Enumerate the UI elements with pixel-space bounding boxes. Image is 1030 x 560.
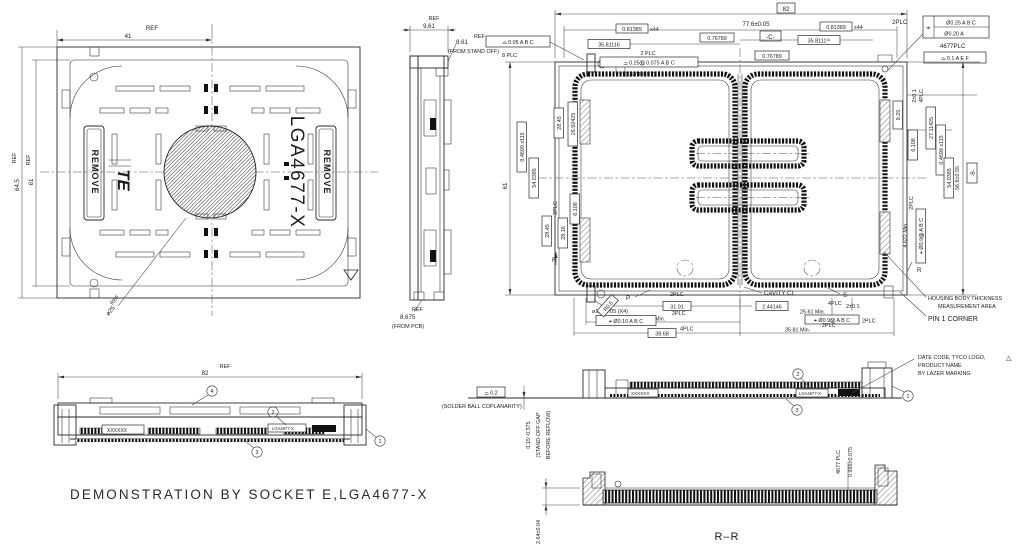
- main-view: 82 2PLC 77.6±0.05 -C- 0.81389 x44 0.8138…: [480, 0, 1030, 360]
- pitch-x-left-count: x44: [650, 27, 659, 33]
- dim-8675-ref: REF: [412, 307, 423, 313]
- position-row2: Ø0.20 A: [944, 32, 964, 38]
- hole-fcf: ⌖ Ø0.10 A B C: [609, 319, 643, 325]
- rr-pin-dim: 0.995±0.075: [848, 447, 854, 477]
- dim-64-5-ref: REF: [12, 152, 18, 163]
- lbl-4plc-b: 4PLC: [828, 301, 842, 307]
- dim-9-25: 9.25: [896, 110, 902, 121]
- rr-dim-height: 2.64±0.04: [536, 520, 542, 544]
- sec-balloon-2: 2: [797, 372, 800, 378]
- coplanarity-fcf: ⌓ 0.2: [484, 391, 497, 397]
- drawing-title: DEMONSTRATION BY SOCKET E,LGA4677-X: [70, 487, 429, 502]
- keypost-note: (KEY POST): [625, 72, 656, 78]
- main-left-dimensions: 61 0.4699 x115 54.0385 28.45 26.92425 2P…: [502, 62, 580, 295]
- dim-540385-l: 54.0385: [532, 168, 538, 188]
- dim-61-main: 61: [502, 182, 509, 189]
- pin1-triangle: [344, 270, 358, 280]
- pickup-cap-circle: [164, 126, 256, 218]
- main-geometry: [538, 48, 926, 312]
- lbl-4plc-b2: 4PLC: [680, 327, 694, 333]
- assembly-dimensions: 82 REF 4 2 3 1: [58, 364, 385, 457]
- dim-2-01-r: 2±0.1: [912, 89, 918, 102]
- dim-076789-a: 0.76789: [707, 36, 727, 42]
- marking-note-1: DATE CODE, TYCO LOGO,: [918, 355, 986, 361]
- assembly-dim-82-ref: REF: [220, 364, 231, 370]
- section-geometry: XXXXXX LGA4677-X: [468, 362, 902, 398]
- dim-8675: 8.675: [400, 314, 416, 321]
- dim-9-61: 9.61: [423, 23, 435, 30]
- dim-56-6: 56.6±0.05: [955, 166, 961, 190]
- dim-2-01-b: 2±0.1: [846, 304, 859, 310]
- note-housing-2: MEASUREMENT AREA: [938, 304, 996, 310]
- sec-p: P: [626, 295, 630, 302]
- marking-note-3: BY LAZER MARKING: [918, 371, 971, 377]
- note-from-pcb: (FROM PCB): [392, 324, 424, 330]
- dim-2845-t: 28.45: [557, 116, 563, 130]
- pitch-x-left: 0.81389: [622, 27, 642, 33]
- dim-3581-r: 35.81 Min.: [785, 328, 810, 334]
- dim-076789-b: 0.76789: [762, 54, 782, 60]
- dim-244146: 2.44146: [762, 305, 782, 311]
- dim-540385-r: 54.0385: [947, 168, 953, 188]
- dim-6108-l: 6.108: [573, 202, 579, 216]
- product-label: LGA4677-X: [286, 116, 307, 229]
- dim-61: 61: [28, 178, 35, 185]
- profile8-plc: 8 PLC: [502, 53, 517, 59]
- sec-r-right: R: [917, 267, 922, 274]
- sec-r-left: R: [552, 257, 557, 264]
- note-housing-1: HOUSING BODY THICKNESS: [928, 296, 1002, 302]
- plc2-b1: 2PLC: [670, 292, 684, 298]
- plc2-l: 2PLC: [553, 201, 559, 215]
- keypost-plc: 2 PLC: [641, 51, 656, 57]
- assembly-geometry: XXXXXX LGA4677-X: [54, 398, 366, 445]
- dim-3101: 31.01: [670, 305, 684, 311]
- rr-pin-count: 4677 PLC: [836, 450, 842, 474]
- rr-section-view: 2.64±0.04 4677 PLC 0.995±0.075 R–R: [530, 440, 1030, 560]
- pitch-x-right-count: x44: [854, 25, 863, 31]
- marking-note-flag: △: [1006, 355, 1012, 362]
- datum-b: -B-: [971, 169, 977, 176]
- marking-note-2: PRODUCT NAME: [918, 363, 962, 369]
- dim-2845-b: 28.45: [545, 224, 551, 238]
- plan-view: REMOVE REMOVE LGA4677-X TE 41 REF 64.5 R…: [0, 0, 390, 340]
- pitch-x-right: 0.81389: [826, 25, 846, 31]
- main-top-dimensions: 82 2PLC 77.6±0.05 -C- 0.81389 x44 0.8138…: [486, 3, 908, 78]
- dim-3868: 38.68: [655, 332, 669, 338]
- marking-xxxxxx: XXXXXX: [107, 428, 128, 434]
- te-logo: TE: [114, 169, 133, 191]
- side-geometry: [410, 56, 451, 300]
- balloon-1: 1: [379, 439, 382, 445]
- assembly-dim-82: 82: [202, 370, 209, 377]
- plc2-top: 2PLC: [892, 19, 908, 26]
- engineering-drawing-canvas: REMOVE REMOVE LGA4677-X TE 41 REF 64.5 R…: [0, 0, 1030, 560]
- keypost-fcf: ⌓ 0.25Ⓜ 0.075 A B C: [623, 61, 674, 67]
- sec-s: S: [843, 292, 847, 299]
- dim-2692425: 26.92425: [571, 113, 577, 135]
- balloon-4: 4: [211, 389, 214, 395]
- rr-label: R–R: [714, 531, 739, 543]
- dim-2561: 25.61 Min.: [800, 310, 825, 316]
- dim-41-ref: REF: [146, 25, 158, 32]
- dim-8-61: 8.61: [456, 39, 468, 46]
- sec-balloon-1: 1: [907, 394, 910, 400]
- remove-right-label: REMOVE: [322, 149, 332, 194]
- balloon-3: 3: [256, 450, 259, 456]
- lbl-4plc-r: 4PLC: [919, 89, 925, 103]
- dim-2711425: 27.11425: [929, 117, 935, 139]
- dim-2816: 28.16: [561, 226, 567, 240]
- position-symbol: ⌖: [927, 25, 931, 32]
- assembly-side-view: XXXXXX LGA4677-X 82 REF 4 2 3 1: [40, 355, 460, 480]
- dim-9-61-ref: REF: [429, 16, 440, 22]
- profile8-fcf: ⌓ 0.05 A B C: [502, 40, 533, 46]
- aef-fcf: ⌓ 0.1 A E F: [941, 56, 969, 62]
- pos-fcf-r: ⌖ Ø0.9Ⓜ A B C: [919, 218, 925, 254]
- main-right-dimensions: 9.25 2±0.1 4PLC 27.11425 6.108 0.4699 x1…: [893, 62, 980, 295]
- product-plate: LGA4677-X: [272, 426, 294, 431]
- dim-41: 41: [125, 33, 132, 40]
- cavity-cl: CAVITY CL: [764, 290, 796, 297]
- coplanarity-note: (SOLDER BALL COPLANARITY): [442, 404, 522, 410]
- section-product-plate: LGA4677-X: [799, 391, 821, 396]
- pitch-y-l: 0.4699 x115: [520, 132, 526, 161]
- plc2-r: 2PLC: [909, 196, 915, 210]
- dim-82: 82: [783, 6, 790, 13]
- dim-64-5: 64.5: [14, 178, 21, 190]
- dim-61-ref: REF: [26, 154, 32, 165]
- note-pin1-corner: PIN 1 CORNER: [928, 316, 978, 323]
- plc2-b2: 2PLC: [862, 319, 876, 325]
- dim-3581116-l: 35.81116: [598, 43, 620, 49]
- dim-3581116-r: 35.8111¹⁶: [808, 39, 831, 45]
- sec-balloon-3: 3: [796, 408, 799, 414]
- dim-77-6: 77.6±0.05: [742, 21, 770, 28]
- dim-4622: 4.622 Min.: [903, 222, 909, 247]
- section-marking: XXXXXX: [631, 391, 649, 396]
- circle-ref-label: REF: [109, 294, 121, 307]
- dim-6108-r: 6.108: [911, 138, 917, 152]
- circle-dia-label: ø25: [105, 304, 118, 317]
- position-row1: Ø0.25 A B C: [946, 21, 976, 27]
- main-notes: HOUSING BODY THICKNESS MEASUREMENT AREA …: [884, 252, 1002, 323]
- plc2-b4: 2PLC: [822, 323, 836, 329]
- remove-left-label: REMOVE: [90, 149, 100, 194]
- balloon-2: 2: [272, 410, 275, 416]
- plc2-b3: 2PLC: [672, 311, 686, 317]
- pos-plc: 4677PLC: [940, 43, 966, 50]
